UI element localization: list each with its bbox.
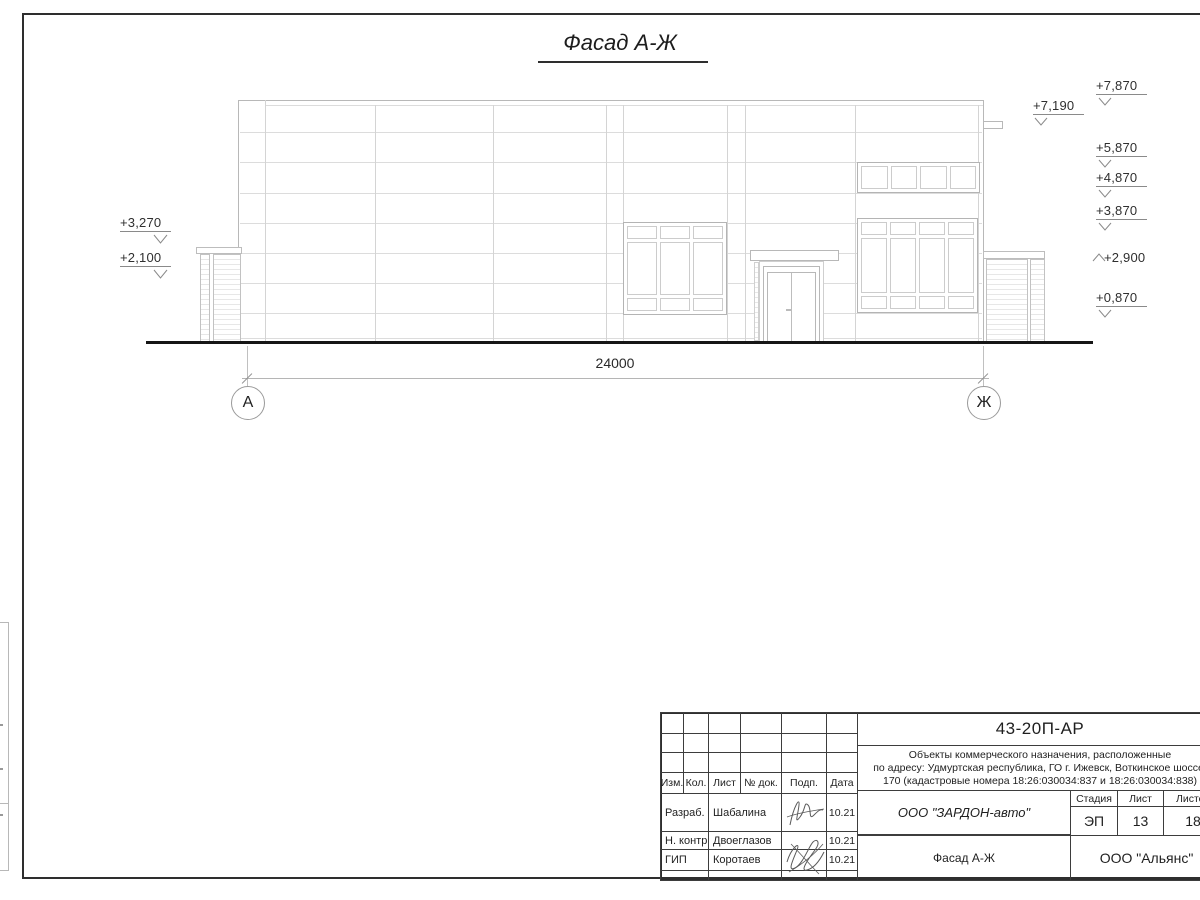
tb-sheets-label: Листов <box>1163 790 1200 807</box>
tb-empty-cell <box>740 752 782 773</box>
elevation-mark: +5,870 <box>1096 140 1147 155</box>
elevation-mark: +3,870 <box>1096 203 1147 218</box>
louver-left-narrow <box>200 254 210 343</box>
margin-mark <box>0 724 3 726</box>
tb-empty-cell <box>683 752 709 773</box>
window-pane <box>861 296 887 309</box>
tb-sheet-value: 13 <box>1117 806 1164 836</box>
elevation-label: +7,870 <box>1096 78 1147 95</box>
window-pane <box>693 298 723 311</box>
elevation-mark: +4,870 <box>1096 170 1147 185</box>
tb-empty-cell <box>683 712 709 734</box>
tb-header-kol: Кол. <box>683 772 709 794</box>
panel-joint <box>978 105 979 343</box>
louver-right-wide <box>986 259 1028 343</box>
margin-line <box>0 870 8 871</box>
panel-joint <box>375 105 376 343</box>
tb-description-line: по адресу: Удмуртская республика, ГО г. … <box>873 762 1200 775</box>
axis-label: А <box>243 394 254 412</box>
window-pane <box>627 298 657 311</box>
tb-header-ndok: № док. <box>740 772 782 794</box>
window-pane <box>948 238 974 293</box>
door-split <box>791 273 792 341</box>
elevation-label: +7,190 <box>1033 98 1084 115</box>
tb-name: Шабалина <box>708 793 782 832</box>
tb-empty-cell <box>660 733 684 753</box>
tb-drawing-name: Фасад А-Ж <box>857 835 1071 881</box>
drawing-sheet: Фасад А-Ж <box>0 0 1200 900</box>
tb-empty-cell <box>740 733 782 753</box>
window-band-right <box>857 162 980 193</box>
tb-date: 10.21 <box>826 849 858 871</box>
window-pane <box>950 166 977 189</box>
margin-line <box>0 622 8 623</box>
ground-line <box>146 341 1093 344</box>
elevation-arrow-icon <box>1098 306 1112 324</box>
tb-empty-cell <box>708 870 782 881</box>
axis-bubble-a: А <box>231 386 265 420</box>
tb-name: Коротаев <box>708 849 782 871</box>
elevation-label: +0,870 <box>1096 290 1147 307</box>
window-pane <box>627 242 657 295</box>
window-pane <box>660 298 690 311</box>
window-pane <box>861 166 888 189</box>
panel-joint <box>265 100 266 343</box>
tb-stage-label: Стадия <box>1070 790 1118 807</box>
elevation-label: +3,870 <box>1096 203 1147 220</box>
axis-label: Ж <box>977 394 992 412</box>
signature-kontr-gip <box>783 832 827 878</box>
margin-line <box>8 622 9 871</box>
tb-empty-cell <box>660 712 684 734</box>
window-right <box>857 218 978 313</box>
window-pane <box>919 238 945 293</box>
axis-bubble-zh: Ж <box>967 386 1001 420</box>
tb-empty-cell <box>708 712 741 734</box>
tb-empty-cell <box>826 752 858 773</box>
window-pane <box>693 226 723 239</box>
tb-doc-number: 43-20П-АР <box>857 712 1200 746</box>
panel-joint <box>745 105 746 343</box>
axis-extension-right <box>983 346 984 390</box>
elevation-mark: +7,190 <box>1033 98 1084 113</box>
tb-header-list: Лист <box>708 772 741 794</box>
window-pane <box>861 238 887 293</box>
margin-line <box>0 803 8 804</box>
louver-right-narrow <box>1030 259 1045 343</box>
roof-scupper <box>983 121 1003 129</box>
signature-razrab <box>784 795 826 831</box>
elevation-arrow-icon <box>153 267 168 285</box>
elevation-label: +2,900 <box>1104 250 1145 265</box>
panel-joint <box>606 105 607 343</box>
window-pane <box>660 242 690 295</box>
tb-header-data: Дата <box>826 772 858 794</box>
window-pane <box>891 166 918 189</box>
tb-empty-cell <box>708 733 741 753</box>
margin-mark <box>0 768 3 770</box>
entrance-canopy <box>750 250 839 261</box>
tb-empty-cell <box>781 752 827 773</box>
dimension-label: 24000 <box>560 355 670 371</box>
panel-joint <box>855 105 856 343</box>
drawing-title: Фасад А-Ж <box>538 30 708 63</box>
elevation-label: +4,870 <box>1096 170 1147 187</box>
tb-header-podp: Подп. <box>781 772 827 794</box>
elevation-mark: +7,870 <box>1096 78 1147 93</box>
tb-role: Разраб. <box>660 793 709 832</box>
tb-description-line: 170 (кадастровые номера 18:26:030034:837… <box>883 775 1197 788</box>
tb-company: ООО "ЗАРДОН-авто" <box>857 790 1071 835</box>
tb-project-description: Объекты коммерческого назначения, распол… <box>857 745 1200 791</box>
elevation-mark: +0,870 <box>1096 290 1147 305</box>
tb-sheet-label: Лист <box>1117 790 1164 807</box>
window-pane <box>660 226 690 239</box>
louver-left-wide <box>213 254 241 343</box>
window-pane <box>693 242 723 295</box>
panel-joint <box>493 105 494 343</box>
tb-empty-cell <box>826 733 858 753</box>
elevation-mark: +2,900 <box>1104 250 1145 265</box>
panel-joint <box>727 105 728 343</box>
axis-extension-left <box>247 346 248 390</box>
window-pane <box>919 296 945 309</box>
tb-empty-cell <box>781 733 827 753</box>
margin-mark <box>0 814 3 816</box>
tb-empty-cell <box>683 733 709 753</box>
elevation-arrow-icon <box>1098 186 1112 204</box>
window-pane <box>948 222 974 235</box>
tb-empty-cell <box>826 870 858 881</box>
window-pane <box>861 222 887 235</box>
tb-organization: ООО "Альянс" <box>1070 835 1200 881</box>
tb-role: ГИП <box>660 849 709 871</box>
elevation-arrow-icon <box>1034 114 1048 132</box>
tb-role: Н. контр. <box>660 831 709 850</box>
dimension-line <box>242 378 989 379</box>
elevation-label: +3,270 <box>120 215 171 232</box>
tb-date: 10.21 <box>826 831 858 850</box>
tb-description-line: Объекты коммерческого назначения, распол… <box>909 749 1171 762</box>
parapet-line <box>265 105 983 106</box>
tb-empty-cell <box>781 712 827 734</box>
tb-name: Двоеглазов <box>708 831 782 850</box>
elevation-label: +2,100 <box>120 250 171 267</box>
window-pane <box>890 238 916 293</box>
elevation-arrow-icon <box>1098 219 1112 237</box>
panel-joint <box>240 132 982 133</box>
tb-sheets-value: 18 <box>1163 806 1200 836</box>
window-pane <box>627 226 657 239</box>
tb-stage-value: ЭП <box>1070 806 1118 836</box>
window-pane <box>919 222 945 235</box>
door-handle <box>786 309 791 311</box>
window-pane <box>948 296 974 309</box>
panel-joint <box>240 313 982 314</box>
louver-ledge-right <box>983 251 1045 259</box>
elevation-arrow-icon <box>153 232 168 250</box>
tb-empty-cell <box>740 712 782 734</box>
elevation-mark: +3,270 <box>120 215 171 230</box>
panel-joint <box>240 193 982 194</box>
tb-empty-cell <box>826 712 858 734</box>
tb-date: 10.21 <box>826 793 858 832</box>
tb-empty-cell <box>660 870 709 881</box>
tb-empty-cell <box>660 752 684 773</box>
tb-empty-cell <box>708 752 741 773</box>
louver-ledge-left <box>196 247 242 254</box>
panel-joint <box>240 338 982 339</box>
window-pane <box>890 296 916 309</box>
elevation-arrow-icon <box>1098 94 1112 112</box>
window-pane <box>890 222 916 235</box>
elevation-label: +5,870 <box>1096 140 1147 157</box>
window-pane <box>920 166 947 189</box>
tb-header-izm: Изм. <box>660 772 684 794</box>
elevation-mark: +2,100 <box>120 250 171 265</box>
window-left <box>623 222 727 315</box>
